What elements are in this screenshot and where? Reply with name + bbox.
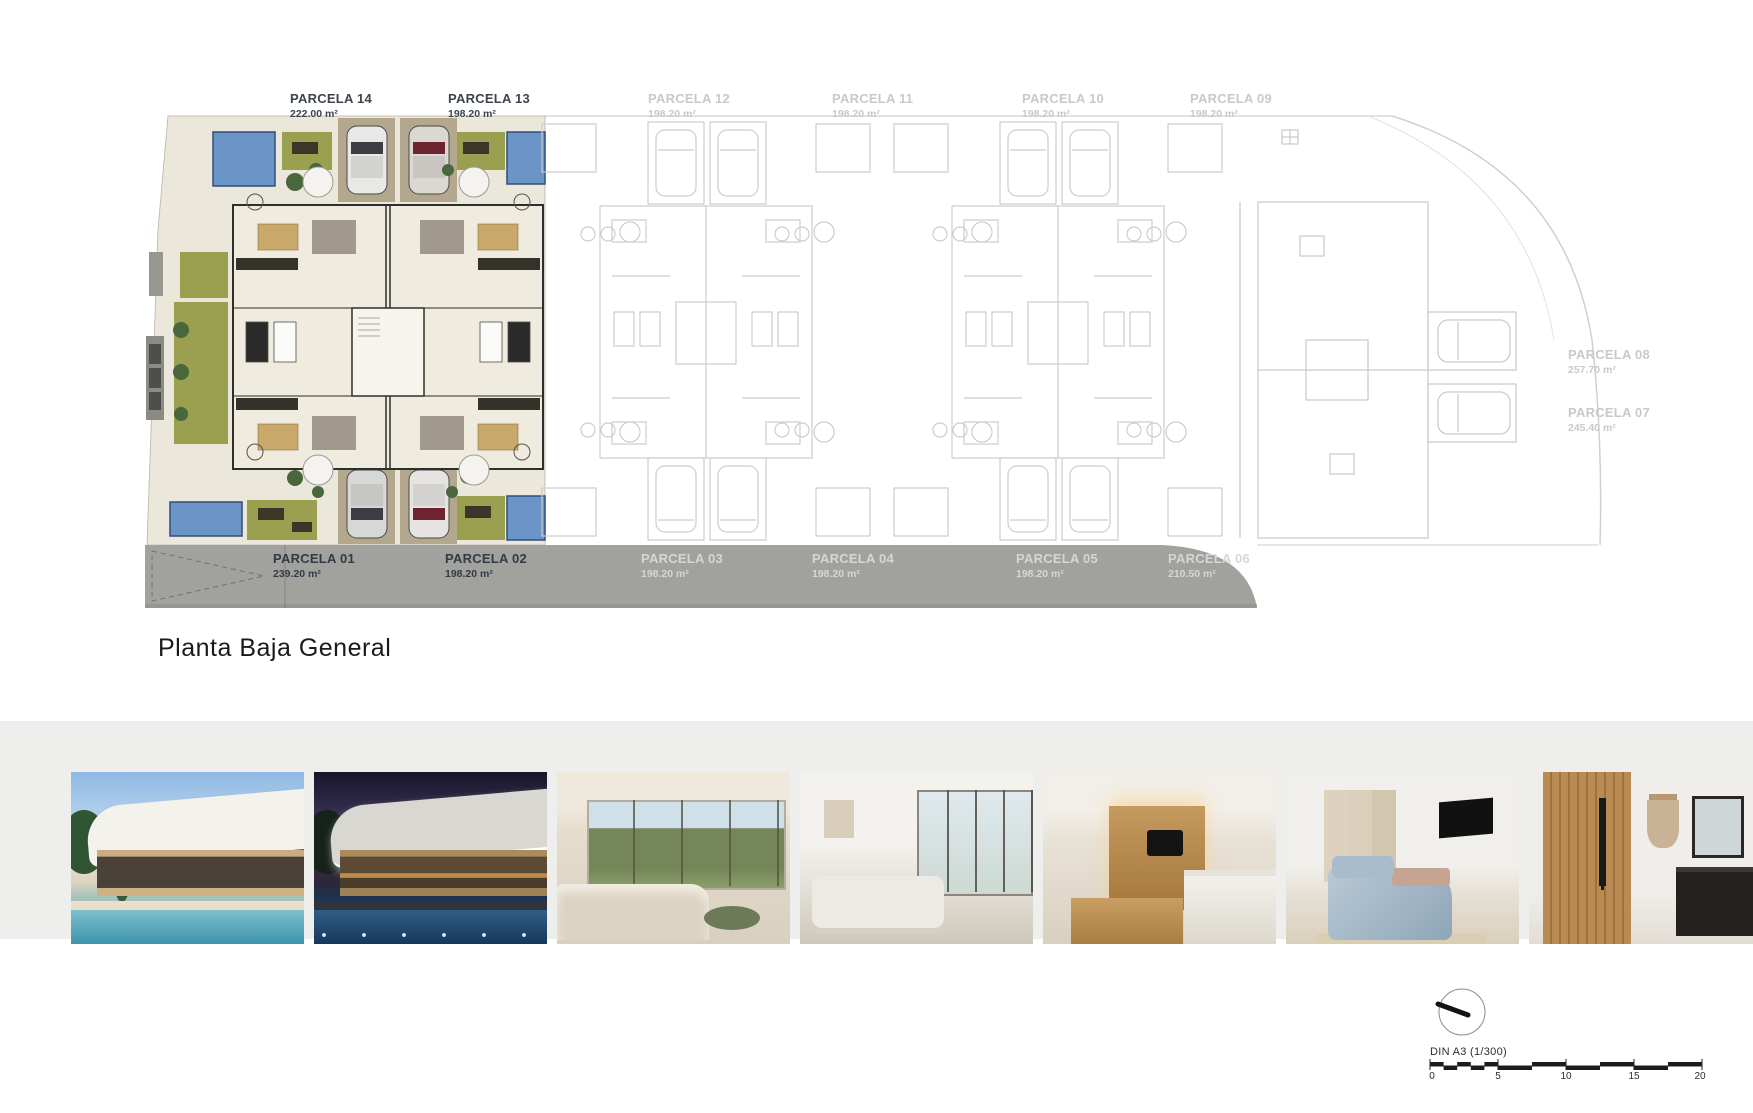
dining-table-shape <box>1071 898 1183 944</box>
parcel-area: 222.00 m² <box>290 108 372 121</box>
parcel-label-13: PARCELA 13 198.20 m² <box>448 91 530 120</box>
parcel-area: 239.20 m² <box>273 568 355 581</box>
car-top-right <box>409 126 449 194</box>
parcel-area: 210.50 m² <box>1168 568 1250 581</box>
scale-tick-20: 20 <box>1694 1071 1705 1082</box>
photo-white-living-room[interactable] <box>800 772 1033 944</box>
bed-shape <box>1328 868 1452 940</box>
parcel-label-11: PARCELA 11 198.20 m² <box>832 91 913 120</box>
parcel-name: PARCELA 03 <box>641 551 723 567</box>
parcel-name: PARCELA 12 <box>648 91 730 107</box>
photo-exterior-day[interactable] <box>71 772 304 944</box>
parcel-label-10: PARCELA 10 198.20 m² <box>1022 91 1104 120</box>
parcel-label-14: PARCELA 14 222.00 m² <box>290 91 372 120</box>
wall-shape <box>340 850 547 896</box>
scale-tick-15: 15 <box>1628 1071 1639 1082</box>
parcel-area: 198.20 m² <box>1190 108 1272 121</box>
parcel-label-01: PARCELA 01 239.20 m² <box>273 551 355 580</box>
shower-fixture-shape <box>1601 806 1604 890</box>
page-title: Planta Baja General <box>158 634 391 663</box>
scale-bar <box>1430 1059 1702 1070</box>
parcel-label-12: PARCELA 12 198.20 m² <box>648 91 730 120</box>
north-compass <box>1438 989 1485 1035</box>
parcel-name: PARCELA 09 <box>1190 91 1272 107</box>
parcel-name: PARCELA 02 <box>445 551 527 567</box>
car-bottom-right <box>409 470 449 538</box>
din-scale-label: DIN A3 (1/300) <box>1430 1046 1507 1058</box>
window-mullions <box>587 800 786 886</box>
parcel-label-09: PARCELA 09 198.20 m² <box>1190 91 1272 120</box>
tv-shape <box>1439 798 1493 839</box>
coffee-table-shape <box>704 906 760 930</box>
parcel-area: 198.20 m² <box>1016 568 1098 581</box>
parcel-name: PARCELA 14 <box>290 91 372 107</box>
scale-tick-5: 5 <box>1495 1071 1501 1082</box>
parcel-area: 198.20 m² <box>445 568 527 581</box>
parcel-name: PARCELA 04 <box>812 551 894 567</box>
parcel-area: 257.70 m² <box>1568 364 1650 377</box>
sofa-shape <box>812 876 944 928</box>
parcel-area: 198.20 m² <box>648 108 730 121</box>
ghost-block-10-09 <box>894 122 1222 540</box>
parcel-area: 198.20 m² <box>1022 108 1104 121</box>
central-patio <box>352 308 424 396</box>
parcel-label-06: PARCELA 06 210.50 m² <box>1168 551 1250 580</box>
car-bottom-left <box>347 470 387 538</box>
wall-art-shape <box>824 800 854 838</box>
photo-kitchen-dining[interactable] <box>1043 772 1276 944</box>
parcel-area: 245.40 m² <box>1568 422 1650 435</box>
plan-sheet: PARCELA 14 222.00 m² PARCELA 13 198.20 m… <box>0 0 1753 1113</box>
ghost-block-08-07 <box>1240 130 1516 538</box>
parcel-label-08: PARCELA 08 257.70 m² <box>1568 347 1650 376</box>
parcel-label-04: PARCELA 04 198.20 m² <box>812 551 894 580</box>
parcel-name: PARCELA 13 <box>448 91 530 107</box>
wall-shape <box>97 850 304 896</box>
parcel-label-05: PARCELA 05 198.20 m² <box>1016 551 1098 580</box>
pool-lights <box>314 930 547 940</box>
parcel-label-03: PARCELA 03 198.20 m² <box>641 551 723 580</box>
parcel-area: 198.20 m² <box>448 108 530 121</box>
parcel-name: PARCELA 06 <box>1168 551 1250 567</box>
parcel-name: PARCELA 07 <box>1568 405 1650 421</box>
parcel-area: 198.20 m² <box>641 568 723 581</box>
parcel-name: PARCELA 11 <box>832 91 913 107</box>
parcel-name: PARCELA 01 <box>273 551 355 567</box>
parcel-name: PARCELA 10 <box>1022 91 1104 107</box>
parcel-area: 198.20 m² <box>832 108 913 121</box>
ghost-block-12-11 <box>542 122 870 540</box>
photo-living-room-garden[interactable] <box>557 772 790 944</box>
pendant-lamp-shape <box>1147 830 1183 856</box>
vanity-shape <box>1676 867 1753 936</box>
scale-tick-0: 0 <box>1429 1071 1435 1082</box>
parcel-label-07: PARCELA 07 245.40 m² <box>1568 405 1650 434</box>
sofa-shape <box>557 884 709 940</box>
parcel-area: 198.20 m² <box>812 568 894 581</box>
kitchen-island-shape <box>1184 870 1276 944</box>
pool-shape <box>71 901 304 944</box>
colored-duplex-block <box>146 116 545 545</box>
parcel-label-02: PARCELA 02 198.20 m² <box>445 551 527 580</box>
parcel-name: PARCELA 05 <box>1016 551 1098 567</box>
photo-exterior-night[interactable] <box>314 772 547 944</box>
parcel-name: PARCELA 08 <box>1568 347 1650 363</box>
photo-bathroom[interactable] <box>1529 772 1753 944</box>
robe-shape <box>1647 800 1679 848</box>
scale-tick-10: 10 <box>1560 1071 1571 1082</box>
photo-bedroom[interactable] <box>1286 772 1519 944</box>
wood-slat-wall-shape <box>1543 772 1631 944</box>
utility-boxes <box>146 252 164 420</box>
site-boundary <box>545 116 1601 545</box>
pillows-shape <box>1332 856 1394 878</box>
car-top-left <box>347 126 387 194</box>
mirror-shape <box>1692 796 1744 858</box>
